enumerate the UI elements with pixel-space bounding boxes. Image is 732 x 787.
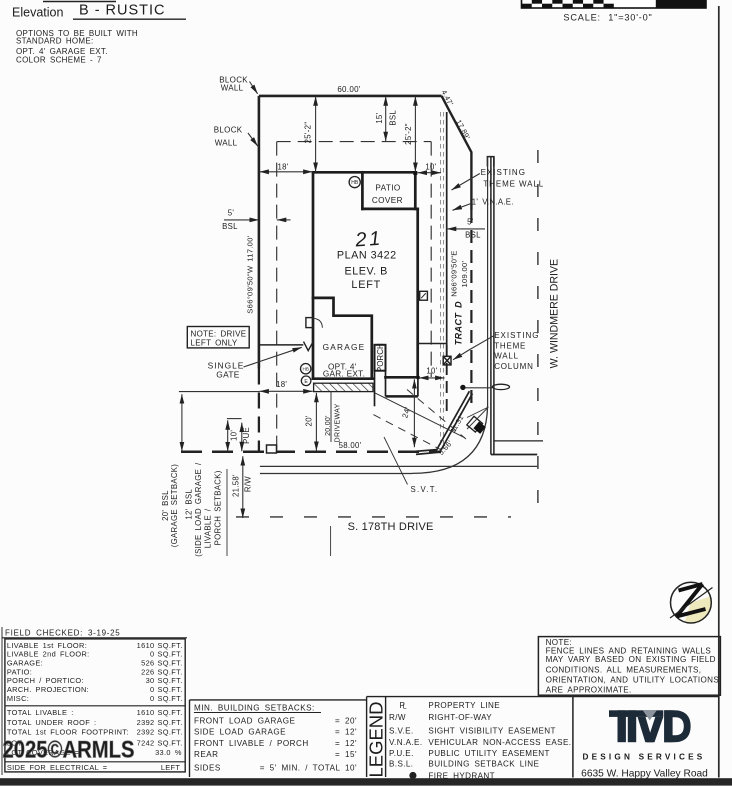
svg-text:SQ.FT.: SQ.FT. — [158, 718, 183, 727]
svg-text:BSL: BSL — [222, 222, 238, 231]
svg-text:18': 18' — [277, 162, 288, 171]
svg-text:21: 21 — [354, 228, 384, 252]
svg-text:PORCH / PORTICO:: PORCH / PORTICO: — [7, 676, 84, 685]
svg-text:SQ.FT.: SQ.FT. — [158, 641, 183, 650]
svg-text:R/W: R/W — [389, 713, 406, 722]
svg-text:SCALE: 1"=30'-0": SCALE: 1"=30'-0" — [563, 12, 652, 22]
svg-text:0: 0 — [150, 694, 154, 703]
svg-text:HB: HB — [351, 180, 359, 186]
svg-text:PORCH: PORCH — [376, 343, 385, 372]
svg-text:ORIENTATION, AND UTILITY LOCAT: ORIENTATION, AND UTILITY LOCATIONS — [546, 675, 720, 684]
svg-text:20.00': 20.00' — [325, 415, 332, 436]
svg-text:S.V.T.: S.V.T. — [411, 485, 439, 494]
svg-text:BUILDING SETBACK LINE: BUILDING SETBACK LINE — [428, 760, 539, 769]
svg-text:TRACT D: TRACT D — [454, 301, 464, 345]
svg-text:ARE APPROXIMATE.: ARE APPROXIMATE. — [546, 686, 632, 695]
svg-text:20' BSL: 20' BSL — [161, 490, 170, 521]
svg-text:STANDARD HOME:: STANDARD HOME: — [16, 36, 94, 45]
svg-text:B - RUSTIC: B - RUSTIC — [79, 3, 166, 19]
svg-text:TOTAL LIVABLE :: TOTAL LIVABLE : — [7, 708, 74, 717]
svg-text:PATIO:: PATIO: — [7, 667, 32, 676]
svg-text:Elevation: Elevation — [12, 6, 63, 20]
svg-text:VEHICULAR NON-ACCESS EASE.: VEHICULAR NON-ACCESS EASE. — [428, 738, 571, 747]
svg-text:COVER: COVER — [372, 196, 403, 205]
svg-text:2025©ARMLS: 2025©ARMLS — [3, 737, 135, 764]
svg-text:BLOCK: BLOCK — [214, 125, 243, 134]
svg-text:COLOR SCHEME - 7: COLOR SCHEME - 7 — [16, 56, 102, 65]
svg-text:BSL: BSL — [465, 230, 481, 239]
svg-text:LIVABLE /: LIVABLE / — [203, 508, 212, 548]
svg-text:58.00': 58.00' — [339, 441, 362, 450]
svg-text:GAR. EXT.: GAR. EXT. — [323, 370, 365, 379]
svg-text:LIVABLE 2nd FLOOR:: LIVABLE 2nd FLOOR: — [7, 650, 90, 659]
svg-text:0: 0 — [150, 650, 154, 659]
svg-text:10': 10' — [425, 162, 436, 171]
svg-text:1610: 1610 — [137, 708, 155, 717]
svg-text:EXISTING: EXISTING — [481, 168, 526, 177]
svg-text:GATE: GATE — [216, 370, 239, 380]
svg-text:SQ.FT.: SQ.FT. — [158, 728, 183, 737]
svg-text:DRIVEWAY: DRIVEWAY — [334, 403, 341, 442]
svg-text:FRONT LIVABLE / PORCH: FRONT LIVABLE / PORCH — [194, 739, 309, 748]
svg-text:EXISTING: EXISTING — [494, 331, 539, 340]
svg-text:PATIO: PATIO — [375, 184, 400, 193]
svg-text:FRONT LOAD GARAGE: FRONT LOAD GARAGE — [194, 716, 295, 725]
svg-text:REAR: REAR — [194, 750, 219, 759]
svg-text:PUE: PUE — [242, 427, 251, 444]
svg-text:V.N.A.E.: V.N.A.E. — [389, 738, 423, 747]
svg-text:7242: 7242 — [137, 739, 155, 748]
svg-text:SQ.FT.: SQ.FT. — [158, 676, 183, 685]
svg-text:SQ.FT.: SQ.FT. — [158, 739, 183, 748]
svg-text:10': 10' — [426, 367, 437, 376]
svg-text:TOTAL UNDER ROOF :: TOTAL UNDER ROOF : — [7, 718, 97, 727]
svg-text:1' V.N.A.E.: 1' V.N.A.E. — [472, 198, 514, 207]
svg-text:= 12': = 12' — [335, 739, 357, 748]
svg-text:GARAGE:: GARAGE: — [7, 659, 43, 668]
svg-text:12' BSL: 12' BSL — [185, 489, 194, 520]
svg-text:R/W: R/W — [243, 476, 252, 492]
svg-text:NOTE: DRIVE: NOTE: DRIVE — [191, 329, 247, 338]
svg-text:SQ.FT.: SQ.FT. — [158, 694, 183, 703]
svg-text:SIGHT VISIBILITY EASEMENT: SIGHT VISIBILITY EASEMENT — [428, 727, 556, 736]
svg-text:= 5' MIN. / TOTAL 10': = 5' MIN. / TOTAL 10' — [260, 764, 357, 773]
svg-text:LEGEND: LEGEND — [366, 701, 387, 777]
svg-text:25'-2": 25'-2" — [304, 122, 313, 144]
svg-text:COLUMN: COLUMN — [494, 362, 533, 371]
svg-text:1610: 1610 — [137, 641, 155, 650]
svg-text:2392: 2392 — [137, 718, 155, 727]
svg-text:%: % — [175, 748, 182, 757]
svg-text:SIDE FOR ELECTRICAL =: SIDE FOR ELECTRICAL = — [7, 763, 108, 772]
svg-text:10': 10' — [230, 430, 239, 441]
svg-text:LEFT ONLY: LEFT ONLY — [191, 338, 238, 347]
svg-text:MISC:: MISC: — [7, 694, 29, 703]
svg-text:2392: 2392 — [137, 728, 155, 737]
svg-text:CONDITIONS. ALL MEASUREMENTS,: CONDITIONS. ALL MEASUREMENTS, — [546, 666, 702, 675]
svg-text:SIDES: SIDES — [194, 764, 221, 773]
svg-text:= 12': = 12' — [335, 728, 357, 737]
svg-text:6635 W. Happy Valley Road: 6635 W. Happy Valley Road — [581, 769, 708, 780]
svg-text:PROPERTY LINE: PROPERTY LINE — [428, 701, 500, 710]
svg-text:25'-2": 25'-2" — [404, 123, 413, 145]
svg-text:THEME: THEME — [494, 341, 526, 350]
svg-text:FENCE LINES AND RETAINING WALL: FENCE LINES AND RETAINING WALLS — [546, 646, 712, 655]
svg-text:5': 5' — [228, 208, 235, 217]
svg-text:5': 5' — [467, 217, 474, 226]
svg-text:THEME WALL: THEME WALL — [483, 180, 544, 189]
svg-text:HB: HB — [303, 367, 309, 372]
svg-text:= 15': = 15' — [335, 750, 357, 759]
svg-text:ARCH. PROJECTION:: ARCH. PROJECTION: — [7, 685, 89, 694]
svg-text:DESIGN SERVICES: DESIGN SERVICES — [583, 753, 706, 762]
svg-text:SQ.FT.: SQ.FT. — [158, 708, 183, 717]
svg-text:33.0: 33.0 — [155, 748, 171, 757]
svg-text:L: L — [403, 704, 407, 711]
svg-text:E: E — [304, 379, 308, 385]
svg-text:0: 0 — [150, 685, 154, 694]
svg-text:WALL: WALL — [494, 352, 519, 361]
svg-text:18': 18' — [276, 380, 287, 389]
svg-text:(SIDE LOAD GARAGE /: (SIDE LOAD GARAGE / — [194, 462, 203, 557]
svg-text:WALL: WALL — [215, 138, 238, 147]
svg-text:109.00': 109.00' — [460, 260, 469, 287]
svg-text:60.00': 60.00' — [337, 85, 361, 94]
svg-text:S66°09'50"W 117.00': S66°09'50"W 117.00' — [246, 235, 255, 313]
svg-text:TOTAL 1st FLOOR FOOTPRINT:: TOTAL 1st FLOOR FOOTPRINT: — [7, 728, 129, 737]
svg-text:FIELD CHECKED: 3-19-25: FIELD CHECKED: 3-19-25 — [5, 628, 120, 637]
svg-text:226: 226 — [141, 667, 154, 676]
svg-text:BSL: BSL — [388, 110, 397, 126]
svg-text:N66°09'50"E: N66°09'50"E — [450, 250, 459, 296]
svg-text:(GARAGE SETBACK): (GARAGE SETBACK) — [170, 464, 179, 548]
svg-text:PUBLIC UTILITY EASEMENT: PUBLIC UTILITY EASEMENT — [428, 749, 549, 758]
svg-text:30: 30 — [146, 676, 155, 685]
svg-text:LEFT: LEFT — [351, 279, 381, 291]
svg-text:S. 178TH DRIVE: S. 178TH DRIVE — [348, 521, 434, 533]
svg-text:20': 20' — [305, 415, 314, 426]
svg-text:ELEV. B: ELEV. B — [345, 265, 388, 277]
svg-text:OPT. 4' GARAGE EXT.: OPT. 4' GARAGE EXT. — [16, 47, 108, 56]
svg-text:P.U.E.: P.U.E. — [389, 749, 414, 758]
svg-text:SQ.FT.: SQ.FT. — [158, 650, 183, 659]
svg-text:WALL: WALL — [221, 84, 244, 93]
svg-text:W. WINDMERE DRIVE: W. WINDMERE DRIVE — [548, 259, 560, 368]
svg-text:SIDE LOAD GARAGE: SIDE LOAD GARAGE — [194, 728, 286, 737]
svg-text:21.58': 21.58' — [232, 474, 241, 497]
svg-text:RIGHT-OF-WAY: RIGHT-OF-WAY — [428, 713, 492, 722]
svg-text:15': 15' — [375, 112, 384, 123]
svg-text:526: 526 — [141, 659, 154, 668]
svg-text:GARAGE: GARAGE — [323, 342, 366, 352]
svg-text:PLAN 3422: PLAN 3422 — [337, 249, 397, 261]
svg-text:MAY VARY BASED ON EXISTING FIE: MAY VARY BASED ON EXISTING FIELD — [546, 655, 716, 664]
svg-text:LEFT: LEFT — [161, 763, 181, 772]
svg-text:SQ.FT.: SQ.FT. — [158, 659, 183, 668]
svg-text:LIVABLE 1st FLOOR:: LIVABLE 1st FLOOR: — [7, 641, 87, 650]
svg-text:SQ.FT.: SQ.FT. — [158, 685, 183, 694]
svg-text:SQ.FT.: SQ.FT. — [158, 667, 183, 676]
svg-text:MIN. BUILDING SETBACKS:: MIN. BUILDING SETBACKS: — [194, 703, 315, 712]
svg-text:S.V.E.: S.V.E. — [389, 727, 414, 736]
svg-text:PORCH SETBACK): PORCH SETBACK) — [213, 470, 222, 545]
svg-text:B.S.L.: B.S.L. — [389, 760, 413, 769]
svg-text:= 20': = 20' — [335, 716, 357, 725]
